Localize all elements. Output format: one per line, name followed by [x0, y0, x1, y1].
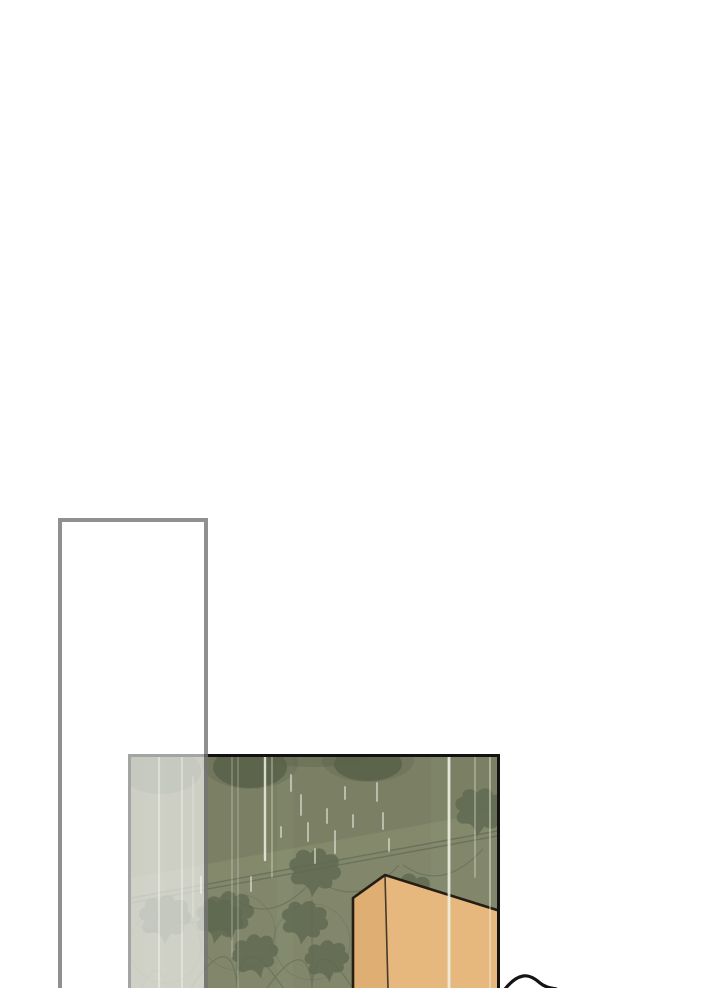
empty-overlay-panel — [58, 518, 208, 988]
figure-curve — [498, 972, 570, 988]
figure-curve-path — [505, 976, 556, 988]
